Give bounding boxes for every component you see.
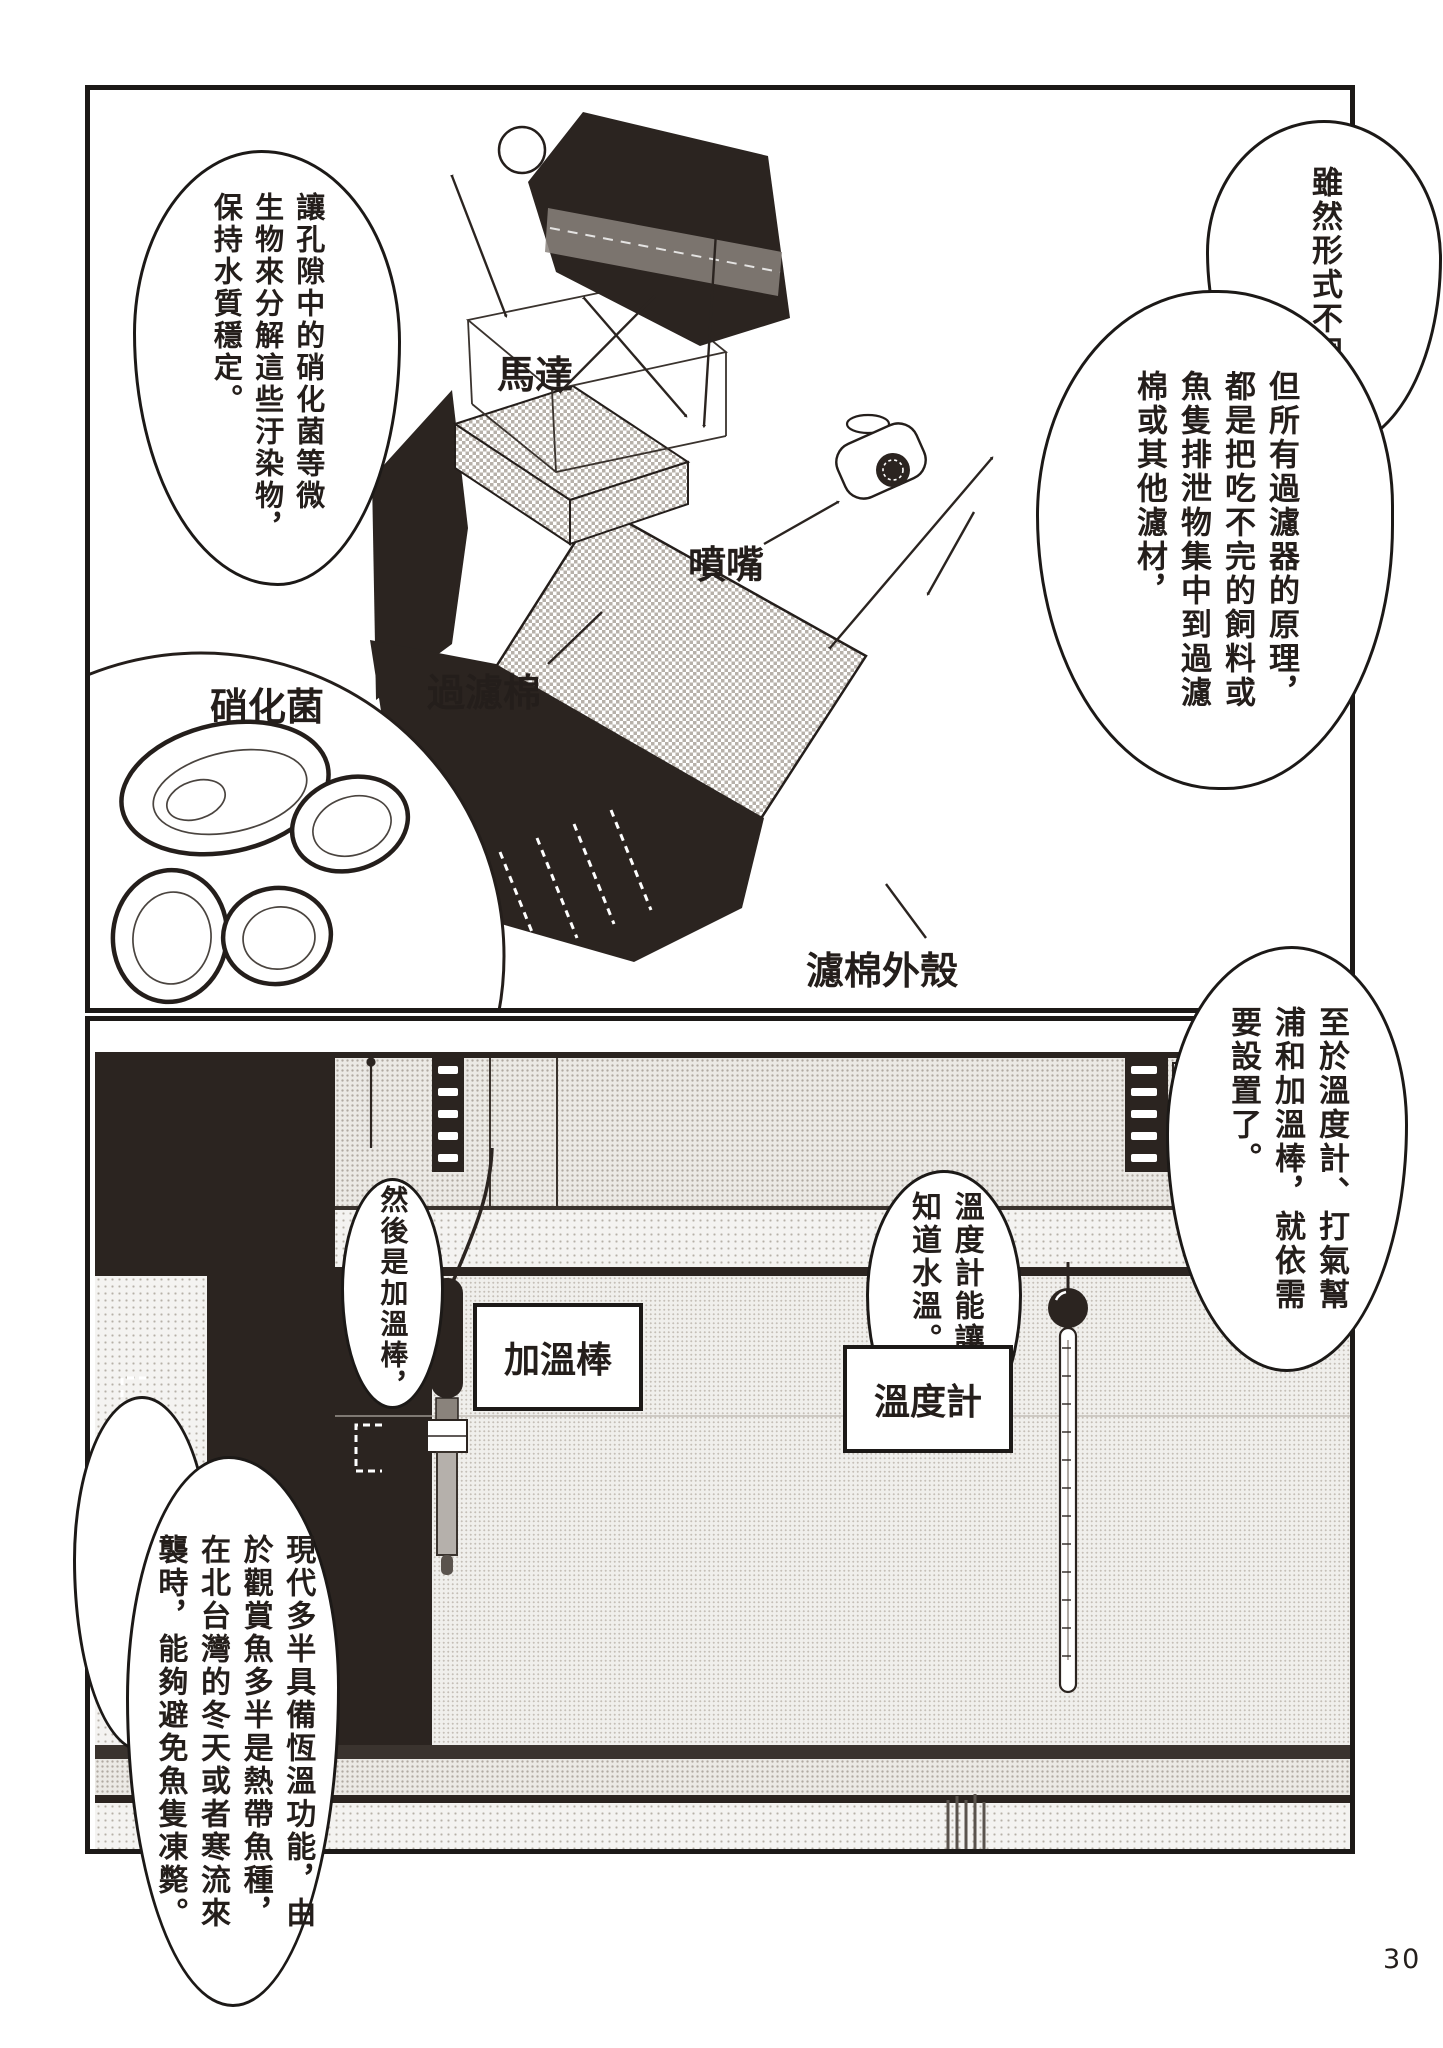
speech-bubble-constant-temp: 現代多半具備恆溫功能，由 於觀賞魚多半是熱帶魚種， 在北台灣的冬天或者寒流來 襲… [126, 1456, 340, 2007]
manga-page: 馬達 過濾棉 噴嘴 濾棉外殼 硝化菌 加溫棒 溫度計 讓孔隙中的硝化菌等微 生物… [0, 0, 1443, 2048]
speech-text: 至於溫度計、打氣幫 浦和加溫棒，就依需 要設置了。 [1221, 1006, 1353, 1312]
label-casing: 濾棉外殼 [806, 940, 958, 995]
speech-text: 然後是加溫棒， [373, 1185, 413, 1402]
thermometer-label-text: 溫度計 [874, 1373, 982, 1425]
thermometer-label-box: 溫度計 [843, 1345, 1013, 1453]
label-nozzle: 噴嘴 [688, 534, 764, 589]
page-number: 30 [1383, 1944, 1421, 1975]
heater-label-text: 加溫棒 [504, 1331, 612, 1383]
speech-text: 但所有過濾器的原理， 都是把吃不完的飼料或 魚隻排泄物集中到過濾 棉或其他濾材， [1127, 370, 1303, 710]
label-motor: 馬達 [497, 344, 573, 399]
speech-bubble-then-heater: 然後是加溫棒， [341, 1178, 444, 1409]
label-bacteria: 硝化菌 [210, 676, 324, 731]
heater-label-box: 加溫棒 [473, 1303, 643, 1411]
speech-text: 現代多半具備恆溫功能，由 於觀賞魚多半是熱帶魚種， 在北台灣的冬天或者寒流來 襲… [148, 1534, 318, 1930]
label-filter-cotton: 過濾棉 [427, 662, 541, 717]
speech-text: 讓孔隙中的硝化菌等微 生物來分解這些汙染物， 保持水質穩定。 [205, 192, 329, 544]
